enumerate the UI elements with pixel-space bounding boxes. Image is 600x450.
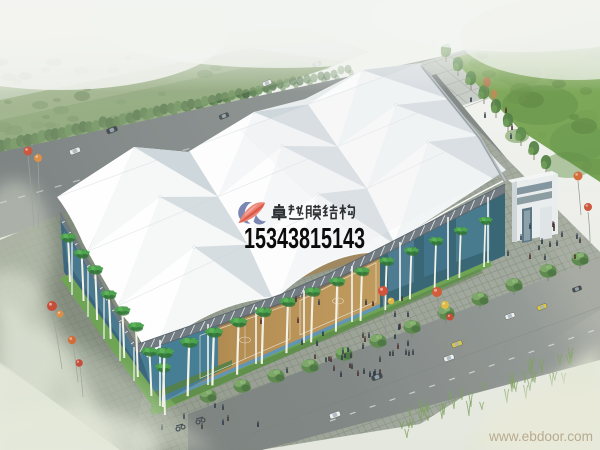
svg-text:15343815143: 15343815143 [244, 223, 365, 255]
svg-text:www.ebdoor.com: www.ebdoor.com [488, 428, 593, 444]
